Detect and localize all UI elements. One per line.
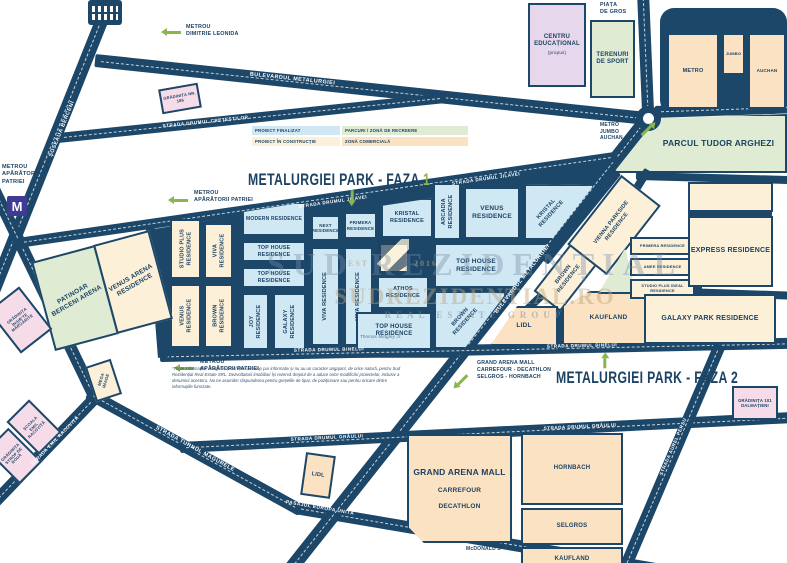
block-primera-residence-1: PRIMERA RESIDENCE xyxy=(344,212,377,239)
block-kaufland-2: KAUFLAND xyxy=(521,547,623,563)
label-metrou-dimitrie-leonida: METROUDIMITRIE LEONIDA xyxy=(186,24,239,38)
label-thomas-midgley: Thomas Midgley Jr. xyxy=(360,334,402,340)
block-amee-residence: AMEE RESIDENCE xyxy=(630,258,695,276)
block-joy-residence: JOY RESIDENCE xyxy=(242,293,269,350)
block-terenuri-de-sport: TERENURI DE SPORT xyxy=(590,20,635,98)
metro-station-icon: M xyxy=(7,196,27,216)
block-primera-residence-2: PRIMERA RESIDENCE xyxy=(630,237,695,255)
block-jumbo-store: JUMBO xyxy=(722,33,745,75)
legend: PROIECT FINALIZATPARCURI / ZONĂ DE RECRE… xyxy=(252,126,468,146)
road-piata-de-gros xyxy=(637,0,654,114)
legend-item: PARCURI / ZONĂ DE RECREERE xyxy=(342,126,468,135)
transit-depot-icon xyxy=(88,0,122,25)
arrow-faza2-up xyxy=(604,358,607,368)
label-piata-de-gros: PIAȚADE GROS xyxy=(600,2,626,16)
block-centru-educational: CENTRU EDUCAȚIONAL(propus) xyxy=(528,3,586,87)
legend-item: ZONĂ COMERCIALĂ xyxy=(342,137,468,146)
label-mcdonalds: McDONALD'S xyxy=(466,546,501,553)
block-metro-store: METRO xyxy=(667,33,719,109)
road-label: STRADA AUREL PERȘU xyxy=(653,404,693,489)
block-express-residence: EXPRESS RESIDENCE xyxy=(688,216,773,287)
title-faza-1-text: METALURGIEI PARK - FAZA xyxy=(248,170,423,189)
label-metrou-aparatorii-patriei-vest: METROUAPĂRĂTORIIPATRIEI xyxy=(2,164,39,186)
title-faza-1-accent: 1 xyxy=(423,170,430,189)
block-top-house-residence-2: TOP HOUSE RESIDENCE xyxy=(242,267,306,288)
label-metro-jumbo-auchan: METROJUMBOAUCHAN xyxy=(600,122,623,142)
block-grand-arena-mall: GRAND ARENA MALLCARREFOURDECATHLON xyxy=(407,434,512,543)
block-galaxy-park-residence: GALAXY PARK RESIDENCE xyxy=(644,294,776,344)
block-kaufland-1: KAUFLAND xyxy=(562,291,655,345)
block-venus-residence-1: VENUS RESIDENCE xyxy=(464,187,520,239)
disclaimer-text: *Toate informațiile, imaginile și schițe… xyxy=(172,366,404,390)
legend-item: PROIECT FINALIZAT xyxy=(252,126,340,135)
title-faza-2: METALURGIEI PARK - FAZA 2 xyxy=(556,368,738,388)
label-grand-arena-pointer: GRAND ARENA MALLCARREFOUR - DECATHLONSEL… xyxy=(477,360,551,380)
arrow-dimitrie-leonida xyxy=(167,31,181,34)
block-viva-residence-a: VIVA RESIDENCE xyxy=(204,223,233,279)
title-faza-1: METALURGIEI PARK - FAZA 1 xyxy=(248,170,430,190)
legend-item: PROIECT ÎN CONSTRUCȚIE xyxy=(252,137,340,146)
block-unlabeled xyxy=(688,182,773,212)
block-next-residence: NEXT RESIDENCE xyxy=(311,215,340,241)
block-hornbach: HORNBACH xyxy=(521,433,623,505)
block-arcadia-residence: ARCADIA RESIDENCE xyxy=(433,183,461,240)
block-venus-residence-a: VENUS RESIDENCE xyxy=(170,284,201,348)
block-brown-residence-a: BROWN RESIDENCE xyxy=(204,284,233,348)
block-studio-plus-residence: STUDIO PLUS RESIDENCE xyxy=(170,219,201,279)
block-viva-residence-1: VIVA RESIDENCE xyxy=(311,247,340,346)
label-metrou-aparatorii-patriei-centru: METROUAPĂRĂTORII PATRIEI xyxy=(194,190,253,204)
block-gradinita-101-dalmatieni: GRĂDINIȚA 101 DALMAȚIENI xyxy=(732,386,778,420)
block-selgros: SELGROS xyxy=(521,508,623,545)
block-top-house-residence-1: TOP HOUSE RESIDENCE xyxy=(242,241,306,262)
block-lidl-2: LIDL xyxy=(300,452,336,499)
block-gradinita-186: GRĂDINIȚA NR. 186 xyxy=(158,83,202,115)
arrow-faza1-down xyxy=(351,190,354,200)
metalurgiei-park-map: M PROIECT FINALIZATPARCURI / ZONĂ DE REC… xyxy=(0,0,787,563)
block-auchan-store: AUCHAN xyxy=(748,33,786,109)
block-galaxy-residence: GALAXY RESIDENCE xyxy=(273,293,306,350)
arrow-patriei-centru xyxy=(174,199,188,202)
road-label: ȘOSEAUA BERCENI xyxy=(42,86,81,172)
block-athos-residence: ATHOS RESIDENCE xyxy=(377,276,429,309)
block-emblem xyxy=(379,243,409,273)
block-top-house-residence-3: TOP HOUSE RESIDENCE xyxy=(356,312,432,350)
arrow-grand-arena xyxy=(457,374,468,385)
